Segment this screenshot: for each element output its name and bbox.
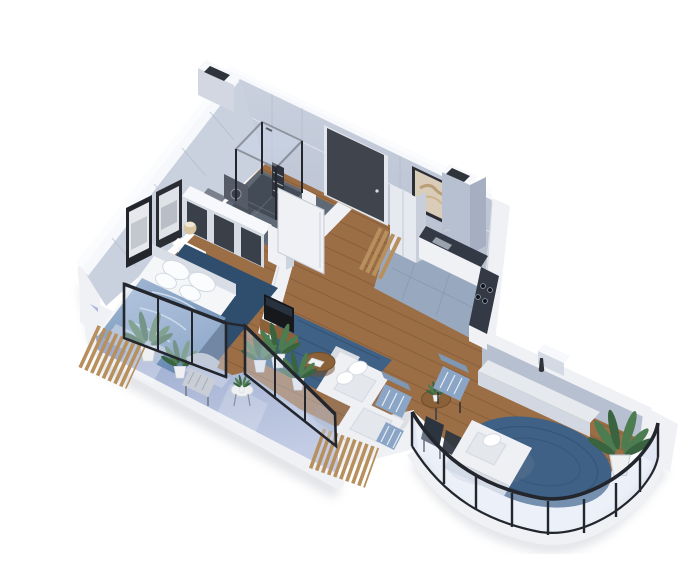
- floorplan-svg: [40, 16, 680, 554]
- door-handle: [375, 189, 378, 192]
- floorplan-render: [40, 16, 680, 554]
